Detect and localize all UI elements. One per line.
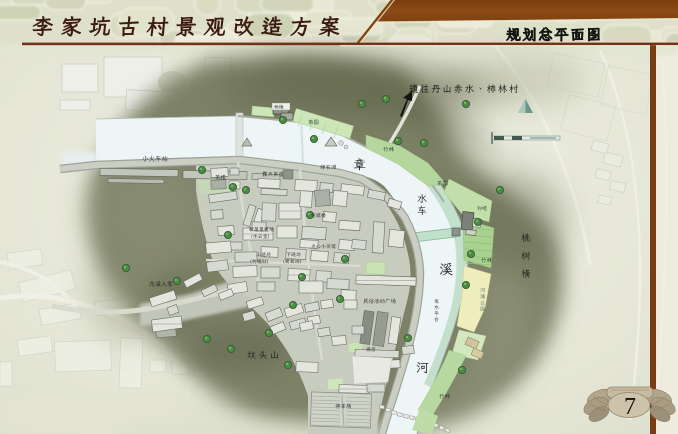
svg-text:7: 7 (624, 394, 636, 420)
